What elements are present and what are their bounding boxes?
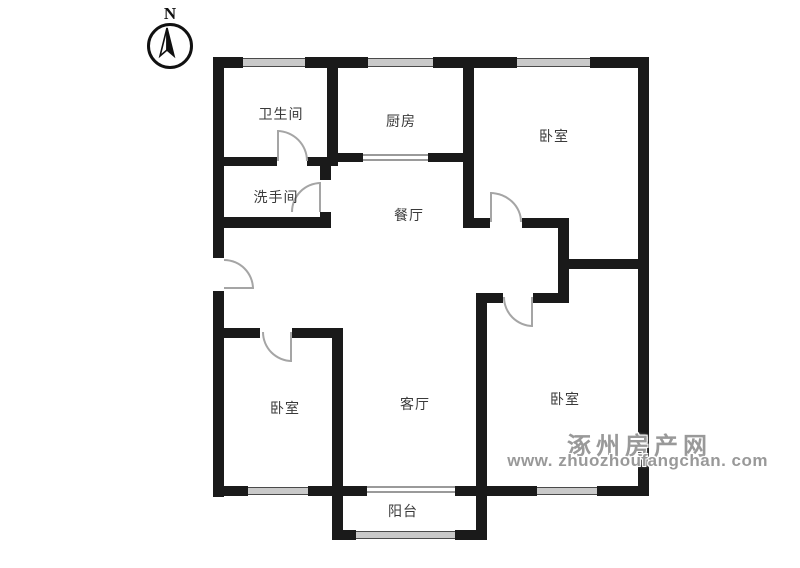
wall-washroom-south [213, 217, 331, 228]
balcony-wall-bottom [332, 530, 356, 540]
door-bedroom-southwest [262, 332, 292, 362]
wall-left [213, 291, 224, 497]
wall-bedrooms-east-divider [558, 259, 649, 269]
wall-top [433, 57, 517, 68]
room-label-kitchen: 厨房 [353, 113, 449, 129]
door-entry [224, 259, 254, 289]
window-balcony [356, 531, 455, 539]
compass: N [146, 5, 194, 69]
window-bedroom-southeast [537, 487, 597, 495]
wall-bedroom-southeast-north [533, 293, 569, 303]
wall-kitchen-south [338, 153, 363, 162]
room-label-bathroom: 卫生间 [233, 106, 329, 122]
wall-living-south [455, 486, 476, 496]
room-label-living-room: 客厅 [367, 396, 463, 412]
door-bedroom-north [490, 192, 522, 222]
wall-living-south [343, 486, 367, 496]
room-label-bedroom-southeast: 卧室 [517, 391, 613, 407]
wall-bottom [597, 486, 649, 496]
wall-bottom [219, 486, 248, 496]
wall-washroom-east [320, 166, 331, 180]
floor-plan: N [0, 0, 800, 568]
balcony-wall-bottom [455, 530, 487, 540]
door-bedroom-southeast [503, 297, 533, 327]
door-bathroom [277, 130, 308, 161]
compass-icon [147, 23, 193, 69]
sliding-window-kitchen [363, 154, 428, 161]
wall-bedroom-north-south [463, 218, 490, 228]
wall-kitchen-east [463, 57, 474, 228]
window-bedroom-north [517, 58, 590, 67]
room-label-washroom: 洗手间 [228, 189, 324, 205]
window-bedroom-southwest [248, 487, 308, 495]
room-label-balcony: 阳台 [355, 503, 451, 519]
compass-north-label: N [146, 5, 194, 22]
room-label-dining-room: 餐厅 [361, 207, 457, 223]
wall-living-west [332, 328, 343, 496]
room-label-bedroom-southwest: 卧室 [237, 400, 333, 416]
sliding-door-balcony [367, 486, 455, 493]
watermark-site-url: www. zhuozhoufangchan. com [507, 451, 768, 471]
wall-bedroom-southwest-north [213, 328, 260, 338]
room-label-bedroom-north: 卧室 [506, 128, 602, 144]
wall-living-east [476, 293, 487, 496]
wall-bathroom-south [213, 157, 277, 166]
window-bathroom-north [243, 58, 305, 67]
window-kitchen-north [368, 58, 433, 67]
wall-bathroom-south [307, 157, 338, 166]
